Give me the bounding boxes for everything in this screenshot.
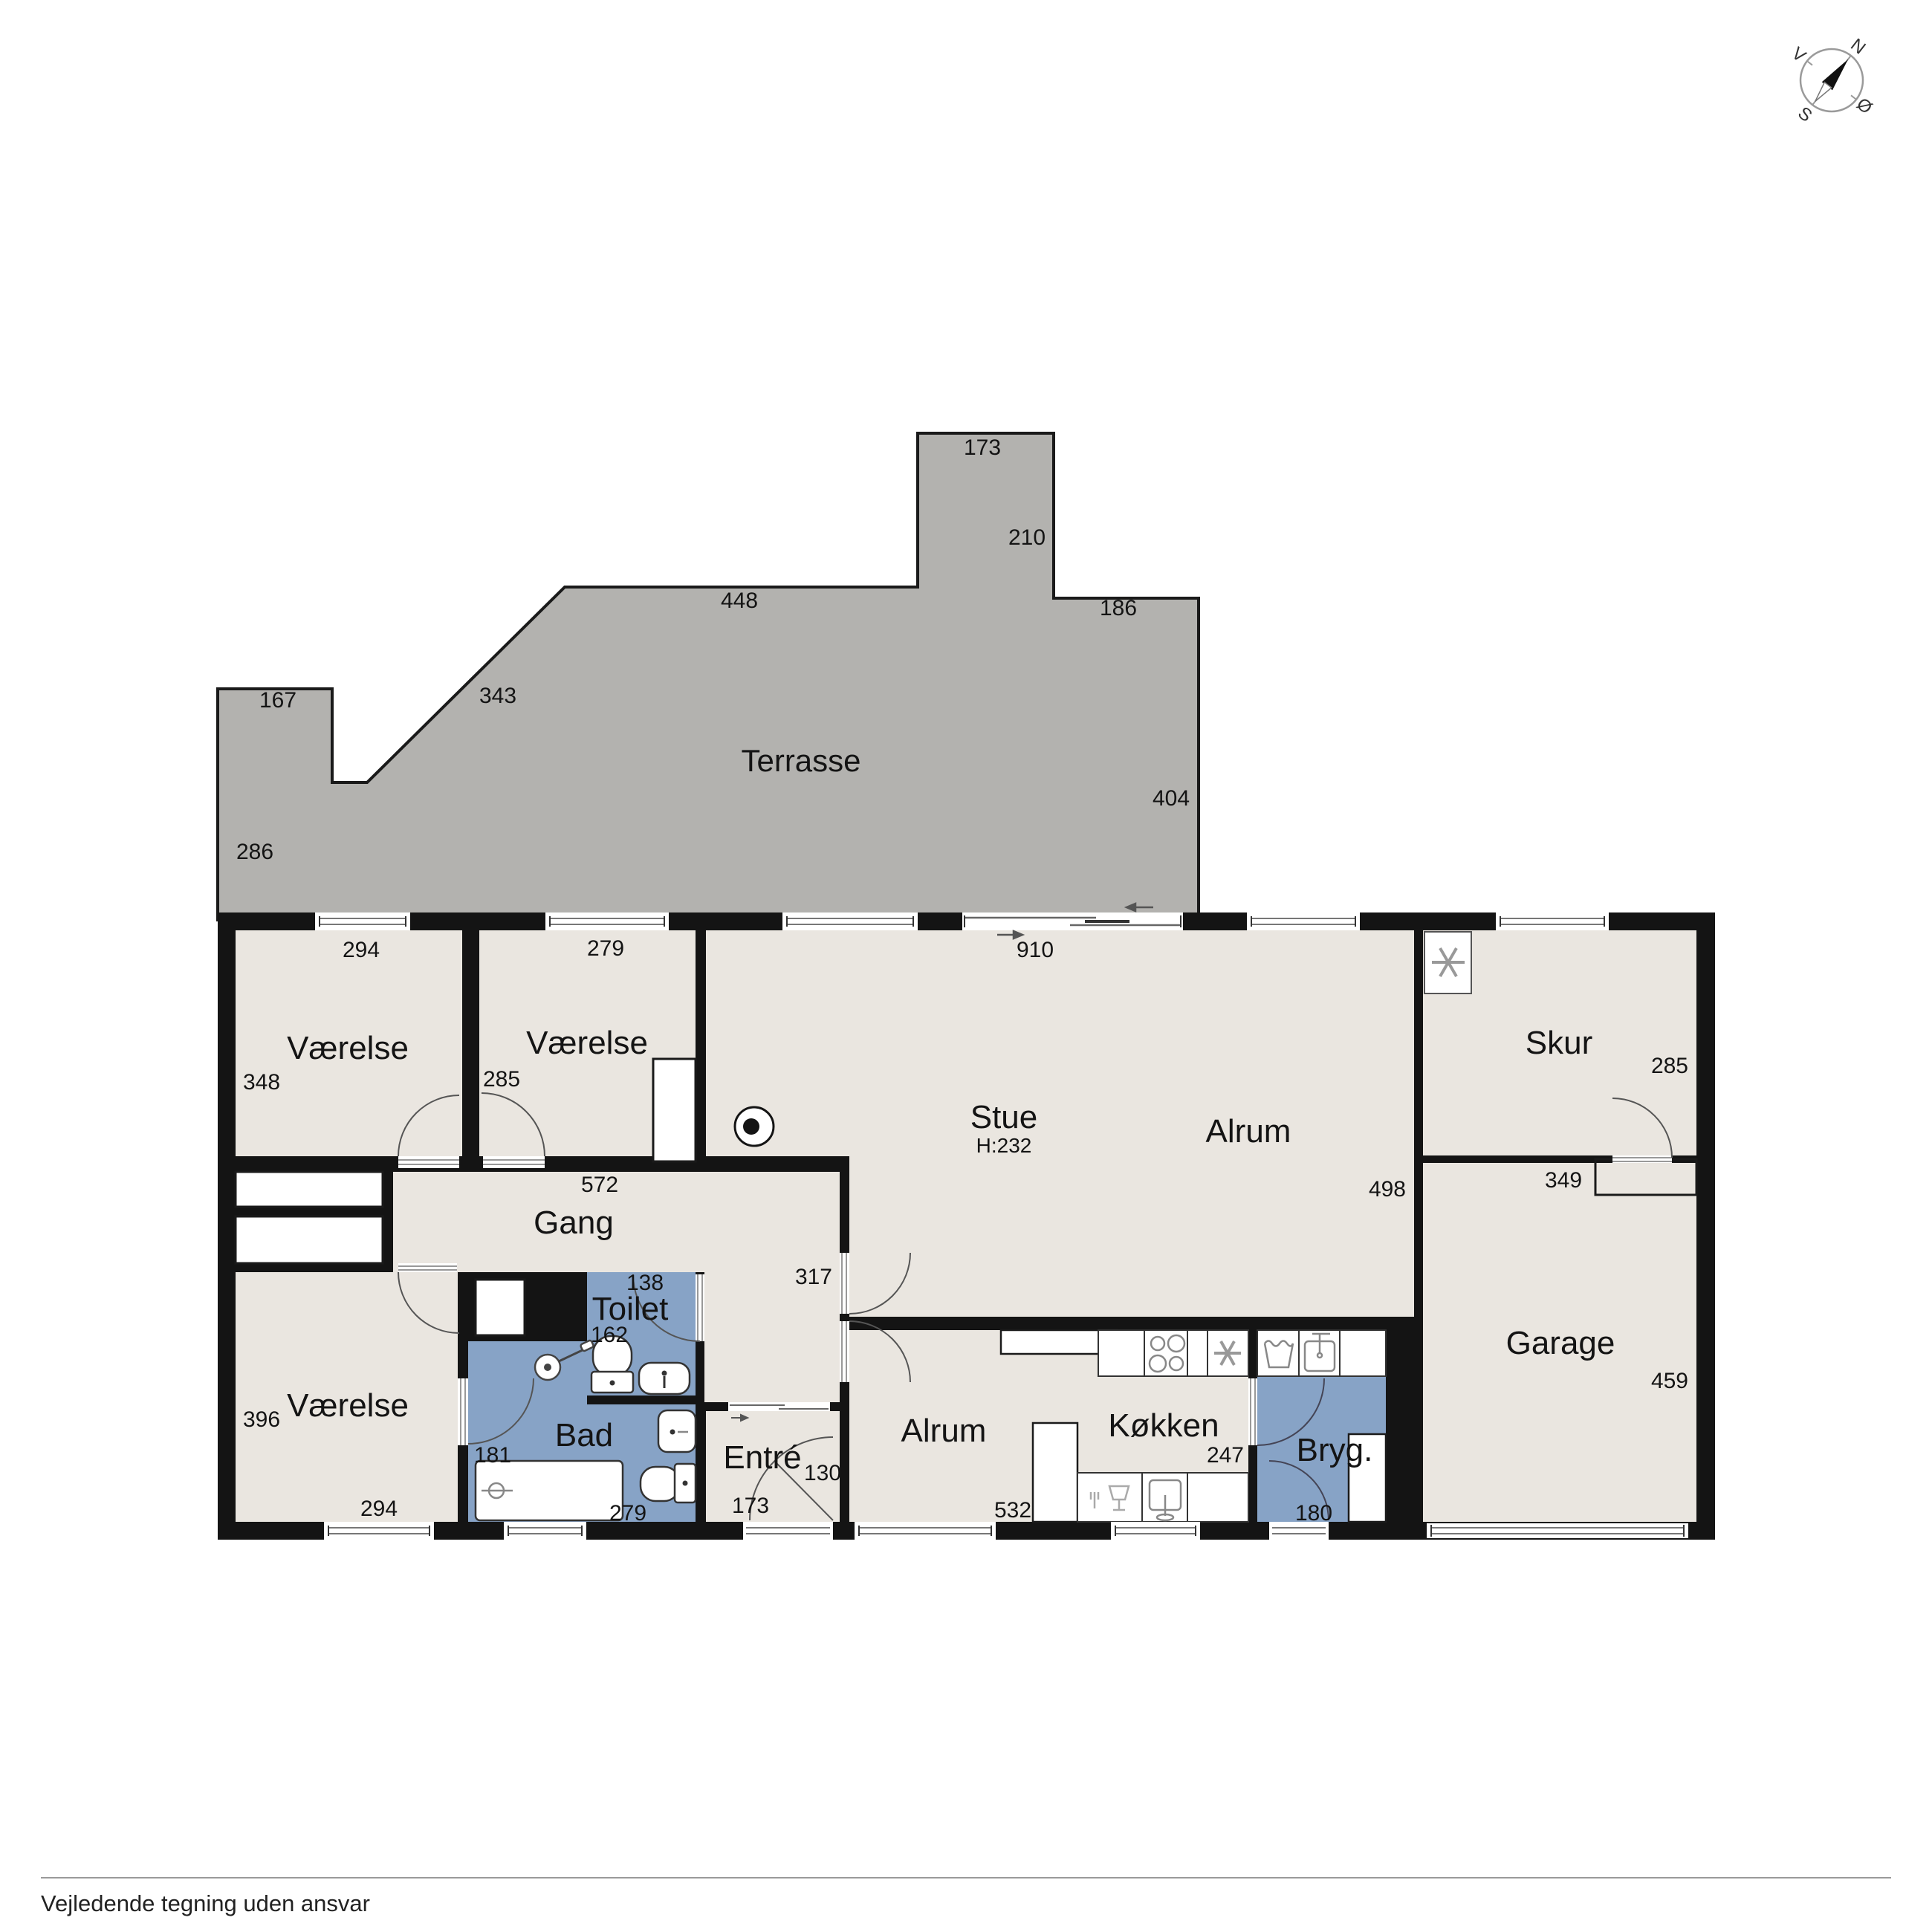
floorplan-drawing: Terrasse 173 210 448 186 167 343 404 286… — [0, 0, 1932, 1932]
closet-upper — [236, 1172, 383, 1207]
entre-dim-right: 130 — [804, 1461, 841, 1485]
skur-dim-right: 285 — [1651, 1054, 1688, 1078]
garage-door — [1427, 1523, 1688, 1538]
bryggers-dim-door: 180 — [1295, 1501, 1332, 1526]
vaerelse-sw-dim-left: 396 — [243, 1407, 280, 1432]
garage-label: Garage — [1506, 1325, 1615, 1361]
vaerelse-n-dim-top: 279 — [587, 936, 624, 961]
footer-divider — [41, 1877, 1891, 1878]
tech-block-cabinet — [476, 1280, 525, 1335]
bathtub — [476, 1461, 623, 1520]
disclaimer-text: Vejledende tegning uden ansvar — [41, 1890, 370, 1917]
terrace-dim-right: 404 — [1153, 786, 1190, 811]
terrace-dim-left-top: 167 — [259, 688, 296, 713]
koekken-label: Køkken — [1108, 1407, 1219, 1444]
wood-stove-icon — [735, 1107, 774, 1146]
compass-needle-south — [1812, 82, 1832, 104]
terrace-outline — [218, 433, 1199, 920]
toilet-south-wall — [587, 1395, 696, 1404]
alrum-lower-dim-bottom: 532 — [994, 1498, 1031, 1523]
toilet-sink — [639, 1363, 690, 1394]
compass-s: S — [1794, 103, 1815, 126]
wardrobe-vaerelse-n — [653, 1059, 696, 1161]
gang-dim-top: 572 — [581, 1173, 618, 1197]
compass-e: Ø — [1852, 94, 1876, 118]
floorplan-page: Terrasse 173 210 448 186 167 343 404 286… — [0, 0, 1932, 1932]
alrum-lower-label: Alrum — [901, 1413, 987, 1449]
vaerelse-sw-dim-bottom: 294 — [360, 1497, 398, 1521]
vaerelse-n-label: Værelse — [526, 1025, 648, 1061]
compass-icon: N S Ø V — [1761, 10, 1902, 152]
alrum-upper-label: Alrum — [1206, 1113, 1291, 1150]
island-cabinet — [1033, 1423, 1077, 1522]
vaerelse-sw-label: Værelse — [287, 1387, 409, 1424]
garage-dim-right: 459 — [1651, 1369, 1688, 1393]
vaerelse-n-dim-left: 285 — [483, 1067, 520, 1092]
closet-lower — [236, 1216, 383, 1263]
skur-label: Skur — [1526, 1025, 1592, 1061]
stue-dim-top: 910 — [1017, 938, 1054, 962]
terrace-label: Terrasse — [741, 743, 860, 778]
gang-dim-door: 317 — [795, 1265, 832, 1289]
entre-dim-bottom: 173 — [732, 1494, 769, 1518]
terrace-dim-mid-top: 448 — [721, 589, 758, 613]
vaerelse-nw-dim-top: 294 — [343, 938, 380, 962]
terrace-dim-step-top: 186 — [1100, 596, 1137, 620]
toilet-label: Toilet — [592, 1291, 669, 1327]
gang-label: Gang — [534, 1205, 614, 1241]
bad-dim-door: 181 — [474, 1443, 511, 1468]
bad-sink — [658, 1410, 696, 1452]
bad-label: Bad — [555, 1417, 613, 1453]
skur-dim-bottom: 349 — [1545, 1168, 1582, 1193]
stue-label: Stue — [970, 1099, 1038, 1135]
terrace-dim-diagonal: 343 — [479, 684, 516, 708]
bryggers-label: Bryg. — [1297, 1432, 1373, 1468]
stue-height: H:232 — [976, 1134, 1032, 1157]
bad-dim-bottom: 279 — [609, 1501, 646, 1526]
terrace-dim-left: 286 — [236, 840, 273, 864]
alrum-upper-dim-right: 498 — [1369, 1177, 1406, 1202]
toilet-dim-left: 162 — [591, 1323, 628, 1347]
terrace-dim-bump-right: 210 — [1008, 525, 1046, 550]
vaerelse-nw-label: Værelse — [287, 1030, 409, 1066]
terrace-dim-bump-top: 173 — [964, 435, 1001, 460]
vaerelse-nw-dim-left: 348 — [243, 1070, 280, 1095]
entre-label: Entré — [723, 1439, 801, 1476]
bad-wc — [641, 1464, 696, 1503]
koekken-dim-right: 247 — [1207, 1443, 1244, 1468]
